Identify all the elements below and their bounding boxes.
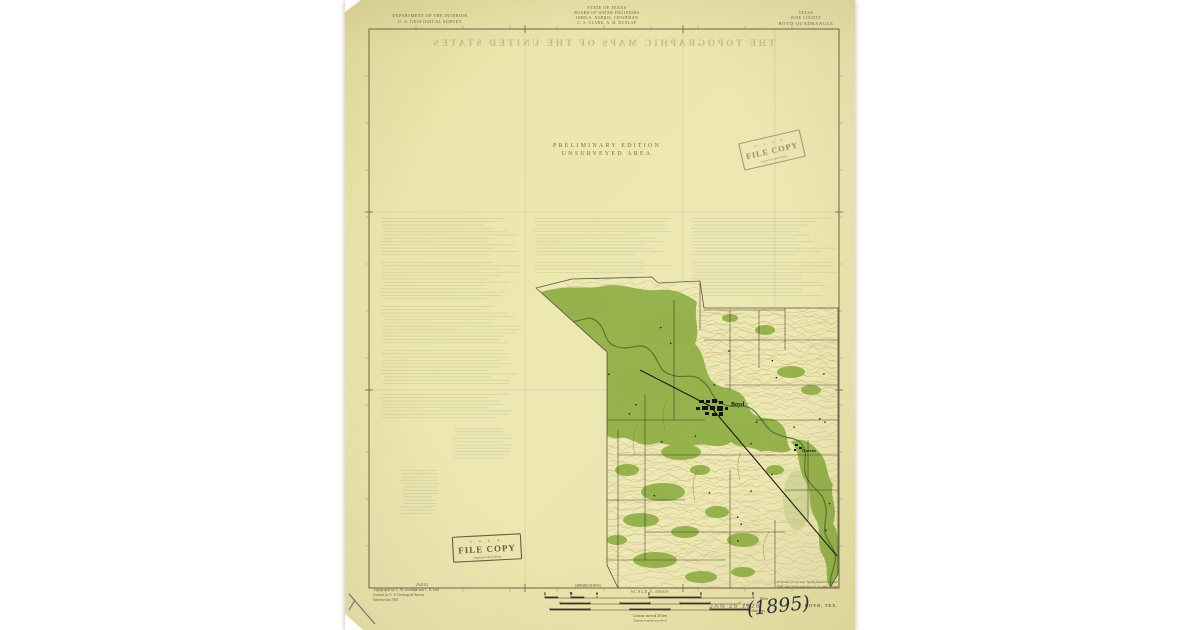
state-line: STATE OF TEXAS [587, 5, 627, 10]
file-copy-stamp-upper: U. S. G. S. FILE COPY Inspection and Edi… [739, 130, 805, 170]
projection-note-2: 5000-yard grid based upon U. S. zone sys… [776, 585, 838, 589]
usgs-line: U. S. GEOLOGICAL SURVEY [398, 19, 462, 24]
preliminary-line2: UNSURVEYED AREA [562, 151, 653, 157]
members-line: C. S. CLARK, A. H. DUNLAP [578, 21, 637, 26]
svg-text:3: 3 [752, 593, 754, 596]
board-line: BOARD OF WATER ENGINEERS [574, 11, 639, 15]
surveyed-map-art: Boyd Garvin [530, 269, 845, 595]
county-name: WISE COUNTY [791, 16, 822, 20]
state-name: TEXAS [799, 11, 813, 15]
pen-mark [349, 594, 375, 624]
scale-statement: SCALE 1:48000 [631, 589, 669, 594]
quadrangle-name: BOYD QUADRANGLE [778, 21, 833, 26]
page: THE TOPOGRAPHIC MAPS OF THE UNITED STATE… [0, 0, 1200, 630]
preliminary-note: PRELIMINARY EDITION UNSURVEYED AREA [553, 143, 661, 157]
projection-note-1: Polyconic projection. North American dat… [777, 580, 838, 584]
adjoining-sheet-center: (SPRINGTOWN) [575, 584, 602, 588]
svg-text:1: 1 [544, 593, 546, 596]
stamp-filecopy-text: FILE COPY [458, 542, 516, 555]
contour-interval-note: Contour interval 20 feet [633, 614, 667, 618]
settlement-label: Garvin [802, 448, 816, 453]
dept-interior-line: DEPARTMENT OF THE INTERIOR [392, 13, 467, 18]
stamp-sub-text: Inspection and Editing [474, 554, 502, 559]
header: DEPARTMENT OF THE INTERIOR U. S. GEOLOGI… [392, 5, 833, 26]
file-copy-stamp-lower: U. S. G. S. FILE COPY Inspection and Edi… [452, 534, 521, 563]
credit-surveyed: Surveyed in 1925 [373, 598, 399, 602]
credit-control: Control by U. S. Geological Survey [373, 593, 425, 597]
town-label: Boyd [731, 402, 745, 408]
map-sheet: THE TOPOGRAPHIC MAPS OF THE UNITED STATE… [345, 0, 855, 630]
credit-topography: Topography by C. W. Goodhue and C. B. Hi… [373, 588, 439, 592]
sheet-artwork: THE TOPOGRAPHIC MAPS OF THE UNITED STATE… [345, 0, 855, 630]
adjoining-sheet-left: (AZLE) [416, 583, 428, 587]
svg-text:½: ½ [570, 593, 572, 596]
datum-note: Datum is mean sea level [633, 619, 666, 623]
svg-text:0: 0 [596, 593, 598, 596]
handwritten-note: (1895) [746, 592, 811, 620]
ghost-title-text: THE TOPOGRAPHIC MAPS OF THE UNITED STATE… [431, 39, 775, 49]
preliminary-line1: PRELIMINARY EDITION [553, 143, 661, 149]
svg-text:2: 2 [700, 593, 702, 596]
